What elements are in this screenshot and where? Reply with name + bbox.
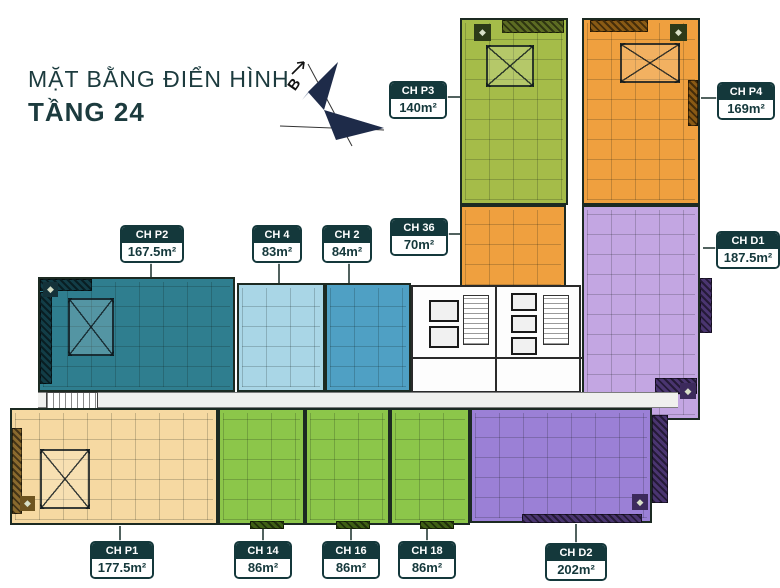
balcony-hatch (652, 415, 668, 503)
balcony-hatch (502, 20, 564, 33)
unit-label-ch-18: CH 18 86m² (398, 541, 456, 579)
unit-area: 169m² (719, 100, 773, 118)
unit-name: CH D2 (547, 545, 605, 561)
leader-line-ch-d2 (575, 524, 577, 543)
unit-area: 70m² (392, 236, 446, 254)
unit-name: CH P1 (92, 543, 152, 559)
leader-line-ch-p4 (701, 97, 717, 99)
elevator-shaft (429, 326, 459, 348)
unit-name: CH 36 (392, 220, 446, 236)
unit-name: CH 14 (236, 543, 290, 559)
unit-region-ch-18 (390, 408, 470, 525)
balcony-hatch (590, 20, 648, 32)
unit-region-ch-14 (218, 408, 305, 525)
vent-shaft-icon: ◆ (632, 494, 648, 510)
unit-area: 83m² (254, 243, 300, 261)
vent-shaft-icon: ◆ (670, 24, 687, 41)
elevator-shaft (429, 300, 459, 322)
void-atrium (486, 45, 534, 87)
balcony-hatch (700, 278, 712, 333)
core-wall (495, 287, 497, 391)
unit-name: CH 4 (254, 227, 300, 243)
unit-area: 86m² (324, 559, 378, 577)
balcony-hatch (420, 521, 454, 529)
page-title-line1: MẶT BẰNG ĐIỂN HÌNH (28, 66, 290, 93)
core-wall (413, 357, 583, 359)
balcony-hatch (336, 521, 370, 529)
balcony-hatch (522, 514, 642, 523)
unit-label-ch-2: CH 2 84m² (322, 225, 372, 263)
unit-label-ch-d2: CH D2 202m² (545, 543, 607, 581)
compass-north-icon: B (272, 48, 392, 148)
unit-area: 177.5m² (92, 559, 152, 577)
unit-area: 84m² (324, 243, 370, 261)
unit-label-ch-p1: CH P1 177.5m² (90, 541, 154, 579)
elevator-shaft (511, 293, 537, 311)
balcony-hatch (250, 521, 284, 529)
unit-label-ch-p3: CH P3 140m² (389, 81, 447, 119)
unit-region-ch-p2: ◆ (38, 277, 235, 392)
unit-area: 187.5m² (718, 249, 778, 267)
svg-text:B: B (284, 75, 304, 94)
service-core (411, 285, 581, 393)
elevator-shaft (511, 337, 537, 355)
leader-line-ch-d1 (703, 247, 716, 249)
leader-line-ch-18 (426, 529, 428, 541)
unit-label-ch-p2: CH P2 167.5m² (120, 225, 184, 263)
unit-region-ch-16 (305, 408, 390, 525)
balcony-hatch (688, 80, 698, 126)
unit-name: CH 16 (324, 543, 378, 559)
page-title-line2: TẦNG 24 (28, 97, 290, 128)
unit-area: 86m² (400, 559, 454, 577)
unit-label-ch-4: CH 4 83m² (252, 225, 302, 263)
void-atrium (620, 43, 680, 83)
unit-area: 86m² (236, 559, 290, 577)
unit-region-ch-2 (325, 283, 411, 392)
vent-shaft-icon: ◆ (680, 383, 696, 399)
unit-region-ch-p3: ◆ (460, 18, 568, 205)
unit-region-ch-d2: ◆ (470, 408, 652, 523)
vent-shaft-icon: ◆ (20, 496, 35, 511)
staircase (463, 295, 489, 345)
unit-area: 202m² (547, 561, 605, 579)
unit-label-ch-14: CH 14 86m² (234, 541, 292, 579)
staircase (543, 295, 569, 345)
unit-name: CH 18 (400, 543, 454, 559)
void-atrium (40, 449, 90, 509)
corridor (38, 392, 678, 408)
unit-name: CH P2 (122, 227, 182, 243)
unit-region-ch-p4: ◆ (582, 18, 700, 205)
unit-region-ch-36 (460, 205, 566, 290)
floor-plan-page: MẶT BẰNG ĐIỂN HÌNH TẦNG 24 B ◆ ◆ ◆ ◆ (0, 0, 780, 588)
elevator-shaft (511, 315, 537, 333)
unit-region-ch-d1: ◆ (582, 205, 700, 420)
leader-line-ch-36 (448, 233, 460, 235)
unit-label-ch-36: CH 36 70m² (390, 218, 448, 256)
unit-name: CH D1 (718, 233, 778, 249)
unit-area: 140m² (391, 99, 445, 117)
vent-shaft-icon: ◆ (474, 24, 491, 41)
void-atrium (68, 298, 114, 356)
unit-area: 167.5m² (122, 243, 182, 261)
unit-region-ch-p1: ◆ (10, 408, 218, 525)
leader-line-ch-16 (350, 529, 352, 541)
unit-name: CH 2 (324, 227, 370, 243)
leader-line-ch-p1 (119, 526, 121, 541)
unit-region-ch-4 (237, 283, 325, 392)
page-title: MẶT BẰNG ĐIỂN HÌNH TẦNG 24 (28, 66, 290, 128)
balcony-hatch (40, 292, 52, 384)
leader-line-ch-p3 (446, 96, 460, 98)
unit-label-ch-16: CH 16 86m² (322, 541, 380, 579)
unit-name: CH P3 (391, 83, 445, 99)
unit-name: CH P4 (719, 84, 773, 100)
leader-line-ch-14 (262, 529, 264, 541)
unit-label-ch-p4: CH P4 169m² (717, 82, 775, 120)
vent-shaft-icon: ◆ (43, 282, 58, 297)
unit-label-ch-d1: CH D1 187.5m² (716, 231, 780, 269)
